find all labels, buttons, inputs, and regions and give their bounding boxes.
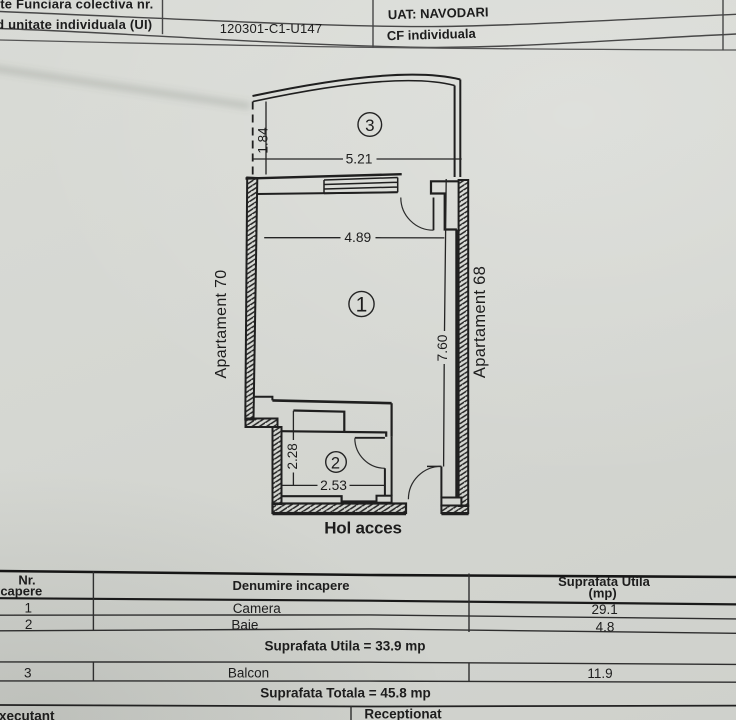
svg-text:(mp): (mp) — [589, 586, 617, 601]
svg-text:5.21: 5.21 — [346, 152, 373, 167]
svg-text:UAT: NAVODARI: UAT: NAVODARI — [388, 4, 489, 22]
svg-text:7.60: 7.60 — [435, 334, 450, 361]
svg-text:Suprafata Totala = 45.8 mp: Suprafata Totala = 45.8 mp — [260, 685, 430, 700]
svg-text:od unitate individuala (UI): od unitate individuala (UI) — [0, 17, 152, 32]
svg-text:Incapere: Incapere — [0, 584, 42, 599]
svg-text:Suprafata Utila = 33.9 mp: Suprafata Utila = 33.9 mp — [265, 639, 426, 654]
svg-text:4.8: 4.8 — [596, 620, 615, 635]
svg-text:Hol acces: Hol acces — [324, 519, 402, 538]
svg-text:Denumire incapere: Denumire incapere — [232, 578, 349, 593]
svg-text:Carte Funciara colectiva nr.: Carte Funciara colectiva nr. — [0, 0, 153, 12]
svg-text:11.9: 11.9 — [587, 666, 612, 681]
svg-text:Balcon: Balcon — [228, 665, 269, 680]
svg-text:Executant: Executant — [0, 709, 55, 720]
svg-text:Baie: Baie — [231, 618, 258, 633]
svg-text:Apartament 68: Apartament 68 — [471, 266, 489, 378]
svg-text:120301-C1-U147: 120301-C1-U147 — [220, 21, 323, 36]
svg-text:CF individuala: CF individuala — [387, 26, 477, 43]
svg-text:1: 1 — [356, 294, 368, 317]
svg-text:Camera: Camera — [233, 601, 282, 616]
svg-text:4.89: 4.89 — [344, 230, 371, 245]
svg-text:2.28: 2.28 — [285, 443, 300, 469]
svg-text:3: 3 — [24, 666, 32, 681]
svg-text:2: 2 — [331, 454, 340, 472]
svg-text:29.1: 29.1 — [591, 602, 617, 617]
svg-text:1: 1 — [25, 601, 33, 616]
svg-text:2.53: 2.53 — [320, 478, 347, 493]
svg-text:3: 3 — [365, 116, 374, 135]
svg-text:Receptionat: Receptionat — [364, 707, 442, 720]
svg-text:1.84: 1.84 — [255, 127, 270, 154]
svg-text:2: 2 — [25, 617, 33, 632]
svg-text:Apartament 70: Apartament 70 — [213, 270, 230, 379]
